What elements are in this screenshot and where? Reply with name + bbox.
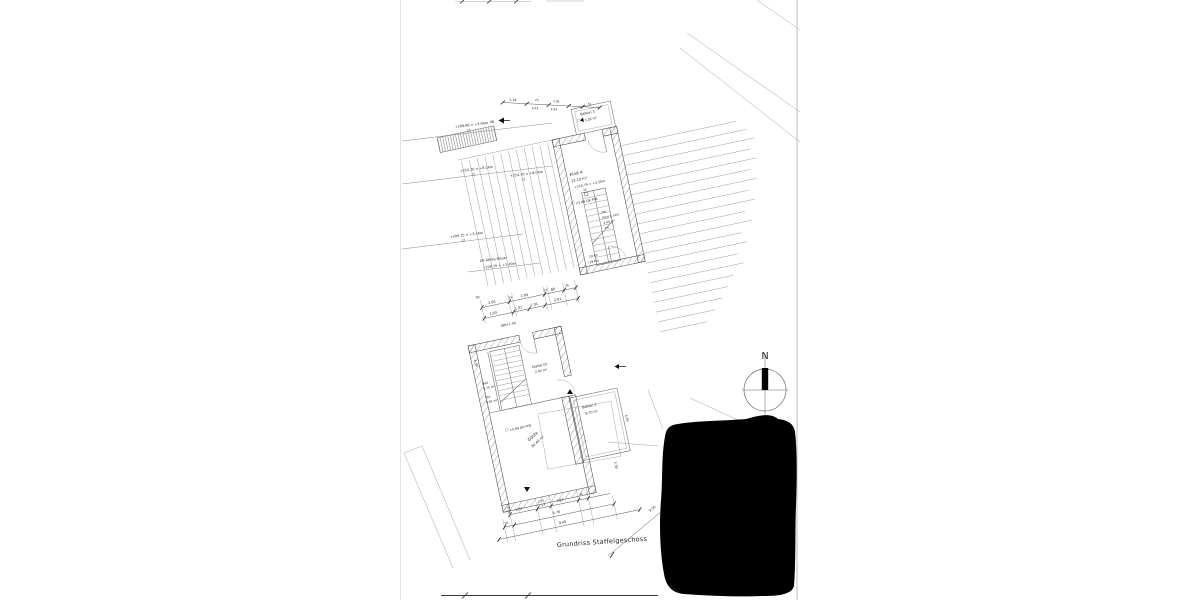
dim-label: 1.01 — [515, 305, 523, 310]
dim-label: 1.99 — [520, 293, 528, 298]
neighbor-roof-lines — [621, 118, 790, 331]
plan-sheet: +209.86 = +3.94m 12 98 +214.30 = +8.04m … — [0, 0, 1200, 600]
elevation-sub: 12 — [471, 172, 475, 176]
door-leaf — [608, 247, 611, 262]
marker-triangle-icon — [567, 389, 573, 394]
sheet-bottom-cut-dimension — [441, 593, 658, 599]
svg-text:2.30: 2.30 — [613, 461, 619, 469]
sheet-top-cut-marks — [455, 0, 584, 4]
dim-label: 1.01 — [530, 302, 538, 307]
marker-triangle-icon — [615, 364, 620, 369]
svg-text:4.50: 4.50 — [624, 414, 630, 422]
dim-label: 36 — [565, 283, 570, 288]
north-label: N — [761, 351, 768, 362]
stair-note: 2tb Kind 4 12st 2.45 m² 7m — [601, 207, 623, 231]
dim-label: 4.70 — [552, 510, 560, 515]
dim-chain-bottom: 1.87 1.26 1.33 1.87 36 36 4.70 9.45 — [490, 477, 643, 545]
attika-level: +209.75 = +2.49m — [482, 262, 516, 270]
partition — [489, 396, 568, 413]
svg-text:9.00: 9.00 — [648, 505, 656, 513]
dim-label: 1.34 — [509, 98, 517, 102]
balkon4: Balkon 4 8.70 m² — [562, 386, 631, 464]
dim-label: .80 — [549, 287, 555, 292]
wall-left — [552, 139, 588, 275]
room-name: Balkon 4 — [582, 403, 597, 410]
wall-top-a — [468, 335, 520, 353]
dim-label: 36 — [504, 521, 509, 526]
level-arrow-icon — [499, 118, 505, 124]
dim-label: .75 — [534, 98, 539, 102]
room-name: Kind 4 — [569, 169, 583, 177]
level-square-icon — [584, 192, 588, 196]
brh-note: BRH 1.00 — [501, 321, 516, 328]
elevation-sub: 12 — [521, 177, 525, 181]
marker-triangle-icon — [524, 487, 530, 492]
north-needle — [762, 368, 768, 390]
dim-label: 90 — [475, 295, 480, 300]
dim-label: 2.00 — [488, 300, 496, 305]
svg-text:2tb: 2tb — [601, 209, 607, 214]
dim-label: 1.93 — [489, 311, 497, 316]
dim-right-vertical: 2.30 — [613, 461, 619, 469]
elevation-label: +214.30 = +8.04m — [460, 165, 494, 173]
level-dot-icon — [505, 428, 509, 432]
dim-label: 2.03 — [532, 106, 539, 110]
redaction-blob — [660, 415, 797, 596]
dim-label: 1.87 — [515, 506, 523, 511]
lower-building: Bad 0.75 m² Flur 0.91 m² Speise (o) 2.42… — [468, 326, 596, 512]
room-area: 3.26 m² — [584, 116, 598, 123]
dim-label: 24 — [543, 288, 548, 293]
elevation-label: +214.30 = +8.04m — [510, 170, 544, 178]
room-area: 2.42 m² — [534, 367, 548, 374]
wall-top-a — [552, 133, 586, 147]
elevation-label: +209.75 = +3.49m — [450, 231, 484, 239]
svg-text:Grundriss Staffelgeschoss: Grundriss Staffelgeschoss — [557, 535, 648, 549]
door-leaf — [603, 136, 606, 152]
ffb-level: +5.89 OK FFB — [509, 424, 532, 433]
wall-right — [610, 126, 646, 262]
dim-label: 24 — [508, 295, 513, 300]
dim-label: 9.45 — [558, 520, 566, 525]
drawing-title: Grundriss Staffelgeschoss — [557, 535, 648, 549]
dim-label: 2.03 — [550, 107, 557, 111]
wall-top-level: (19.60) — [588, 258, 600, 264]
dim-chain-middle: 2.00 24 1.99 24 .80 36 1.93 1.01 1.01 2.… — [475, 274, 582, 331]
elevation-sub: 12 — [461, 238, 465, 242]
dim-label: 2.01 — [554, 297, 562, 302]
dim-right-vertical: 4.50 — [624, 414, 630, 422]
inner-level-sub: 32 — [583, 187, 588, 192]
wall-left — [468, 345, 510, 513]
door-leaf — [534, 339, 537, 353]
door-swing-arc — [557, 377, 575, 395]
north-compass: N — [742, 351, 788, 426]
room-name: Balkon 3 — [580, 110, 595, 117]
attika-label: OK Attika Mauer — [480, 256, 508, 263]
room-area: 8.70 m² — [585, 409, 599, 416]
dim-label: 1.01 — [553, 99, 560, 103]
floor-plan-svg: +209.86 = +3.94m 12 98 +214.30 = +8.04m … — [0, 0, 1200, 600]
dim-label: 51 — [588, 102, 592, 106]
elevation-marker: 98 — [490, 120, 494, 124]
svg-text:7m: 7m — [604, 226, 610, 231]
upper-building: Balkon 3 3.26 m² Kind 4 13.10 m² +210.79… — [437, 73, 789, 368]
dim-label: 1.87 — [556, 498, 564, 503]
